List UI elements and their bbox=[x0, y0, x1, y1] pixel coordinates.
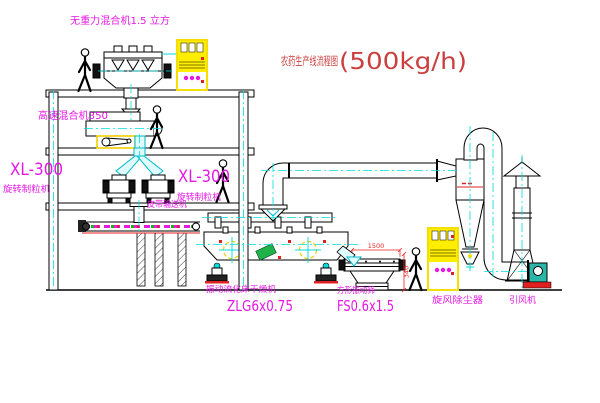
person-figure bbox=[410, 248, 422, 290]
label-sieve-model: FS0.6x1.5 bbox=[337, 297, 394, 315]
label-dryer-model: ZLG6x0.75 bbox=[227, 297, 293, 315]
floor-slab-middle bbox=[46, 148, 254, 155]
label-belt-conveyor: 皮带输送机 bbox=[147, 199, 187, 210]
label-sieve-name: 方形振动筛 bbox=[337, 285, 375, 296]
rotary-granulator-right bbox=[142, 175, 174, 203]
fluid-bed-dryer bbox=[204, 213, 348, 284]
flow-diagram-canvas: 农药生产线流程图 (500kg/h) 无重力混合机1.5 立方 高速混合机350… bbox=[0, 0, 600, 403]
induced-draft-fan bbox=[523, 260, 551, 288]
gravity-free-mixer bbox=[93, 46, 176, 119]
label-cyclone: 旋风除尘器 bbox=[432, 294, 483, 306]
label-granulator-model-left: XL-300 bbox=[10, 160, 63, 180]
dim-sieve-height: 340 bbox=[403, 266, 411, 278]
dim-sieve-length: 1500 bbox=[368, 242, 385, 250]
control-cabinet-upper bbox=[177, 40, 207, 90]
label-granulator-name-left: 旋转制粒机 bbox=[3, 183, 50, 195]
label-fan: 引风机 bbox=[509, 294, 536, 306]
label-granulator-model-right: XL-300 bbox=[178, 167, 230, 187]
production-line-diagram: 农药生产线流程图 (500kg/h) 无重力混合机1.5 立方 高速混合机350… bbox=[0, 0, 600, 403]
label-high-speed-mixer: 高速混合机350 bbox=[38, 109, 108, 122]
control-cabinet-lower bbox=[428, 228, 458, 290]
person-figure bbox=[79, 49, 91, 91]
floor-slab-top bbox=[46, 90, 254, 97]
fan-base bbox=[523, 282, 551, 288]
dryer-exhaust-duct bbox=[259, 163, 437, 221]
title-capacity: (500kg/h) bbox=[339, 49, 467, 75]
label-dryer-name: 振动流化床干燥机 bbox=[206, 284, 276, 295]
label-gravity-mixer: 无重力混合机1.5 立方 bbox=[70, 14, 170, 27]
spring-support bbox=[314, 263, 338, 284]
spring-support bbox=[205, 263, 229, 284]
rotary-granulator-left bbox=[103, 175, 135, 203]
page-title: 农药生产线流程图 bbox=[281, 54, 338, 68]
person-figure bbox=[151, 106, 163, 148]
